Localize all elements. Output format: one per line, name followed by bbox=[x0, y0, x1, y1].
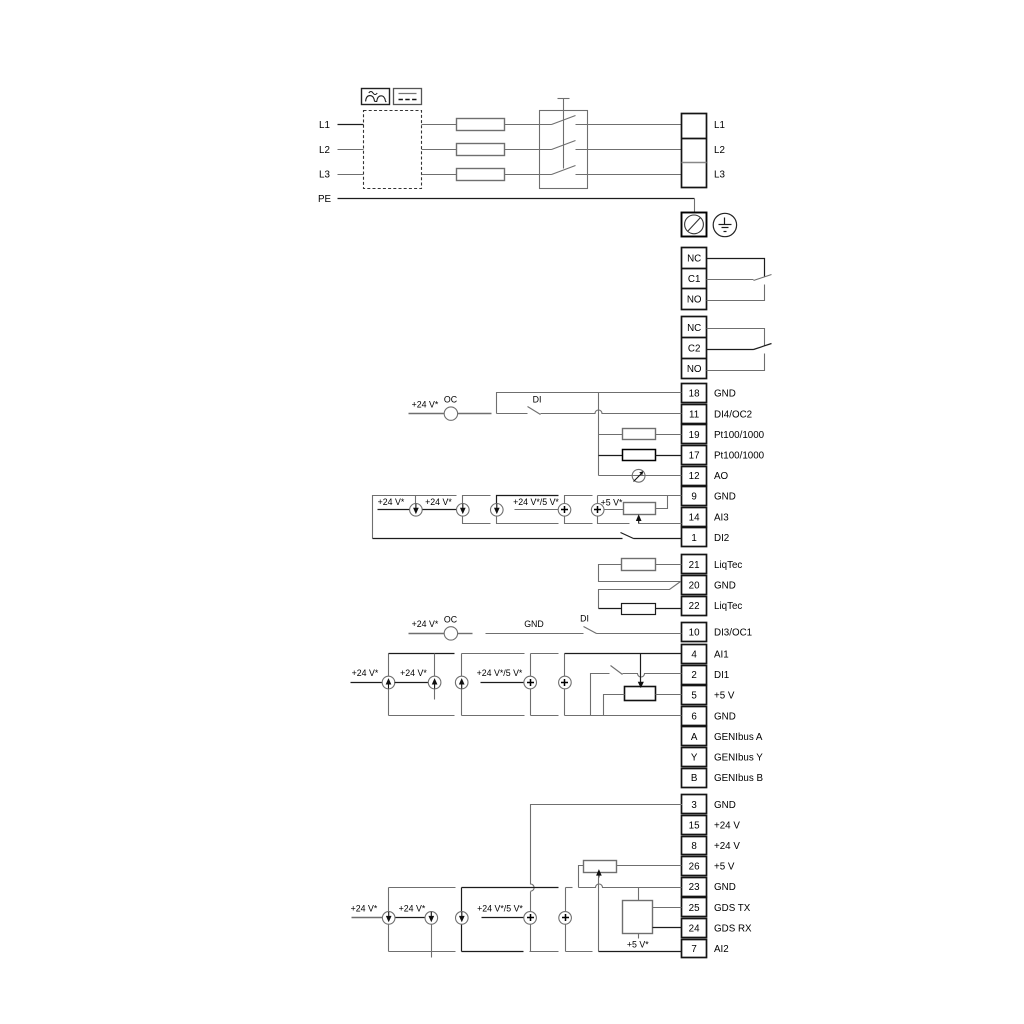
svg-text:+24 V*: +24 V* bbox=[378, 497, 405, 507]
svg-text:+24 V: +24 V bbox=[714, 841, 740, 852]
svg-text:NC: NC bbox=[687, 254, 701, 265]
svg-text:L1: L1 bbox=[319, 120, 330, 131]
svg-text:26: 26 bbox=[689, 862, 700, 873]
svg-text:AO: AO bbox=[714, 471, 729, 482]
svg-text:DI4/OC2: DI4/OC2 bbox=[714, 409, 752, 420]
svg-text:3: 3 bbox=[691, 800, 697, 811]
svg-text:L2: L2 bbox=[319, 145, 330, 156]
svg-text:14: 14 bbox=[689, 512, 700, 523]
svg-text:GND: GND bbox=[714, 581, 736, 592]
svg-text:PE: PE bbox=[318, 194, 332, 205]
svg-text:22: 22 bbox=[689, 601, 700, 612]
svg-text:+24 V*: +24 V* bbox=[351, 904, 378, 914]
svg-text:Y: Y bbox=[691, 753, 698, 764]
svg-text:9: 9 bbox=[691, 492, 696, 503]
svg-text:L3: L3 bbox=[319, 170, 330, 181]
svg-text:+24 V: +24 V bbox=[714, 820, 740, 831]
svg-text:24: 24 bbox=[689, 923, 700, 934]
svg-text:AI1: AI1 bbox=[714, 650, 729, 661]
svg-text:GDS TX: GDS TX bbox=[714, 903, 751, 914]
svg-text:B: B bbox=[691, 773, 698, 784]
svg-text:11: 11 bbox=[689, 409, 699, 420]
svg-text:GENIbus B: GENIbus B bbox=[714, 773, 763, 784]
svg-text:+24 V*: +24 V* bbox=[352, 668, 379, 678]
svg-text:LiqTec: LiqTec bbox=[714, 560, 742, 571]
svg-text:6: 6 bbox=[691, 711, 697, 722]
svg-text:Pt100/1000: Pt100/1000 bbox=[714, 430, 765, 441]
svg-text:19: 19 bbox=[689, 430, 700, 441]
svg-text:+24 V*: +24 V* bbox=[412, 619, 439, 629]
svg-text:OC: OC bbox=[444, 614, 458, 624]
svg-text:DI2: DI2 bbox=[714, 533, 729, 544]
svg-text:+24 V*/5 V*: +24 V*/5 V* bbox=[477, 904, 523, 914]
svg-text:GENIbus Y: GENIbus Y bbox=[714, 753, 763, 764]
svg-text:AI3: AI3 bbox=[714, 512, 729, 523]
svg-text:AI2: AI2 bbox=[714, 944, 729, 955]
svg-text:23: 23 bbox=[689, 882, 700, 893]
svg-text:DI3/OC1: DI3/OC1 bbox=[714, 627, 752, 638]
svg-text:NO: NO bbox=[687, 364, 702, 375]
svg-text:18: 18 bbox=[689, 389, 700, 400]
svg-text:10: 10 bbox=[689, 627, 700, 638]
svg-text:7: 7 bbox=[691, 944, 696, 955]
svg-text:8: 8 bbox=[691, 841, 697, 852]
svg-text:DI1: DI1 bbox=[714, 670, 729, 681]
svg-text:A: A bbox=[691, 732, 698, 743]
svg-text:GND: GND bbox=[714, 882, 736, 893]
svg-text:NC: NC bbox=[687, 323, 701, 334]
svg-text:+5 V*: +5 V* bbox=[601, 497, 623, 507]
svg-text:4: 4 bbox=[691, 650, 697, 661]
svg-text:12: 12 bbox=[689, 471, 700, 482]
svg-text:OC: OC bbox=[444, 395, 458, 405]
svg-text:L2: L2 bbox=[714, 145, 725, 156]
svg-text:GND: GND bbox=[714, 389, 736, 400]
svg-text:C2: C2 bbox=[688, 344, 701, 355]
svg-text:+24 V*: +24 V* bbox=[425, 497, 452, 507]
svg-text:25: 25 bbox=[689, 903, 700, 914]
svg-text:+24 V*: +24 V* bbox=[399, 904, 426, 914]
svg-text:NO: NO bbox=[687, 295, 702, 306]
svg-text:+24 V*: +24 V* bbox=[412, 399, 439, 409]
svg-text:5: 5 bbox=[691, 691, 697, 702]
svg-text:+24 V*/5 V*: +24 V*/5 V* bbox=[513, 497, 559, 507]
svg-text:1: 1 bbox=[691, 533, 696, 544]
svg-text:L1: L1 bbox=[714, 120, 725, 131]
svg-text:GENIbus A: GENIbus A bbox=[714, 732, 763, 743]
svg-text:Pt100/1000: Pt100/1000 bbox=[714, 451, 765, 462]
svg-text:+24 V*: +24 V* bbox=[400, 668, 427, 678]
svg-text:17: 17 bbox=[689, 451, 700, 462]
svg-text:2: 2 bbox=[691, 670, 696, 681]
svg-text:DI: DI bbox=[580, 614, 589, 624]
svg-text:+24 V*/5 V*: +24 V*/5 V* bbox=[477, 668, 523, 678]
svg-text:L3: L3 bbox=[714, 170, 725, 181]
svg-text:GND: GND bbox=[714, 800, 736, 811]
svg-text:GDS RX: GDS RX bbox=[714, 923, 752, 934]
svg-text:DI: DI bbox=[533, 394, 542, 404]
svg-text:21: 21 bbox=[689, 560, 700, 571]
svg-text:+5 V: +5 V bbox=[714, 862, 735, 873]
svg-text:GND: GND bbox=[524, 619, 544, 629]
svg-text:+5 V*: +5 V* bbox=[627, 939, 649, 949]
svg-text:C1: C1 bbox=[688, 274, 701, 285]
svg-text:LiqTec: LiqTec bbox=[714, 601, 742, 612]
svg-text:15: 15 bbox=[689, 820, 700, 831]
svg-text:+5 V: +5 V bbox=[714, 691, 735, 702]
svg-text:GND: GND bbox=[714, 711, 736, 722]
svg-text:20: 20 bbox=[689, 581, 700, 592]
svg-text:GND: GND bbox=[714, 492, 736, 503]
